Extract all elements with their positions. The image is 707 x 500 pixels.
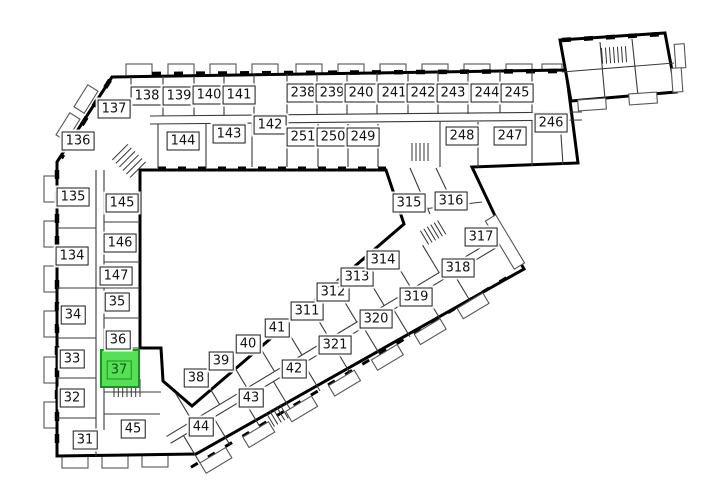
unit-label-41[interactable]: 41 bbox=[265, 319, 290, 338]
unit-label-36[interactable]: 36 bbox=[106, 331, 131, 350]
unit-label-146[interactable]: 146 bbox=[104, 234, 137, 253]
unit-labels-layer: 1381391401412382392402412422432442451371… bbox=[0, 0, 707, 500]
unit-label-44[interactable]: 44 bbox=[189, 418, 214, 437]
floor-plan: 1381391401412382392402412422432442451371… bbox=[0, 0, 707, 500]
unit-label-31[interactable]: 31 bbox=[73, 431, 98, 450]
unit-label-249[interactable]: 249 bbox=[347, 128, 380, 147]
unit-label-321[interactable]: 321 bbox=[319, 336, 352, 355]
unit-label-138[interactable]: 138 bbox=[131, 87, 164, 106]
unit-label-140[interactable]: 140 bbox=[193, 86, 226, 105]
unit-label-317[interactable]: 317 bbox=[465, 228, 498, 247]
unit-label-320[interactable]: 320 bbox=[360, 310, 393, 329]
unit-label-134[interactable]: 134 bbox=[56, 247, 89, 266]
unit-label-33[interactable]: 33 bbox=[60, 350, 85, 369]
unit-label-42[interactable]: 42 bbox=[282, 360, 307, 379]
unit-label-35[interactable]: 35 bbox=[105, 293, 130, 312]
unit-label-248[interactable]: 248 bbox=[446, 127, 479, 146]
unit-label-251[interactable]: 251 bbox=[287, 128, 320, 147]
unit-label-38[interactable]: 38 bbox=[184, 369, 209, 388]
unit-label-238[interactable]: 238 bbox=[287, 84, 320, 103]
unit-label-139[interactable]: 139 bbox=[163, 87, 196, 106]
unit-label-313[interactable]: 313 bbox=[341, 268, 374, 287]
unit-label-315[interactable]: 315 bbox=[393, 194, 426, 213]
unit-label-245[interactable]: 245 bbox=[501, 84, 534, 103]
unit-label-243[interactable]: 243 bbox=[437, 84, 470, 103]
unit-label-241[interactable]: 241 bbox=[378, 84, 411, 103]
unit-label-135[interactable]: 135 bbox=[57, 188, 90, 207]
unit-label-316[interactable]: 316 bbox=[435, 192, 468, 211]
unit-label-45[interactable]: 45 bbox=[121, 420, 146, 439]
unit-label-43[interactable]: 43 bbox=[239, 389, 264, 408]
unit-label-40[interactable]: 40 bbox=[236, 335, 261, 354]
unit-label-37[interactable]: 37 bbox=[107, 361, 132, 380]
unit-label-250[interactable]: 250 bbox=[317, 128, 350, 147]
unit-label-137[interactable]: 137 bbox=[98, 100, 131, 119]
unit-label-34[interactable]: 34 bbox=[61, 306, 86, 325]
unit-label-39[interactable]: 39 bbox=[209, 352, 234, 371]
unit-label-141[interactable]: 141 bbox=[223, 86, 256, 105]
unit-label-242[interactable]: 242 bbox=[407, 84, 440, 103]
unit-label-319[interactable]: 319 bbox=[400, 288, 433, 307]
unit-label-142[interactable]: 142 bbox=[254, 116, 287, 135]
unit-label-247[interactable]: 247 bbox=[494, 127, 527, 146]
unit-label-143[interactable]: 143 bbox=[213, 125, 246, 144]
unit-label-136[interactable]: 136 bbox=[62, 132, 95, 151]
unit-label-239[interactable]: 239 bbox=[316, 84, 349, 103]
unit-label-32[interactable]: 32 bbox=[60, 389, 85, 408]
unit-label-246[interactable]: 246 bbox=[535, 114, 568, 133]
unit-label-240[interactable]: 240 bbox=[345, 84, 378, 103]
unit-label-145[interactable]: 145 bbox=[106, 194, 139, 213]
unit-label-144[interactable]: 144 bbox=[167, 132, 200, 151]
unit-label-314[interactable]: 314 bbox=[367, 251, 400, 270]
unit-label-311[interactable]: 311 bbox=[291, 302, 324, 321]
unit-label-318[interactable]: 318 bbox=[442, 259, 475, 278]
unit-label-244[interactable]: 244 bbox=[471, 84, 504, 103]
unit-label-147[interactable]: 147 bbox=[100, 267, 133, 286]
